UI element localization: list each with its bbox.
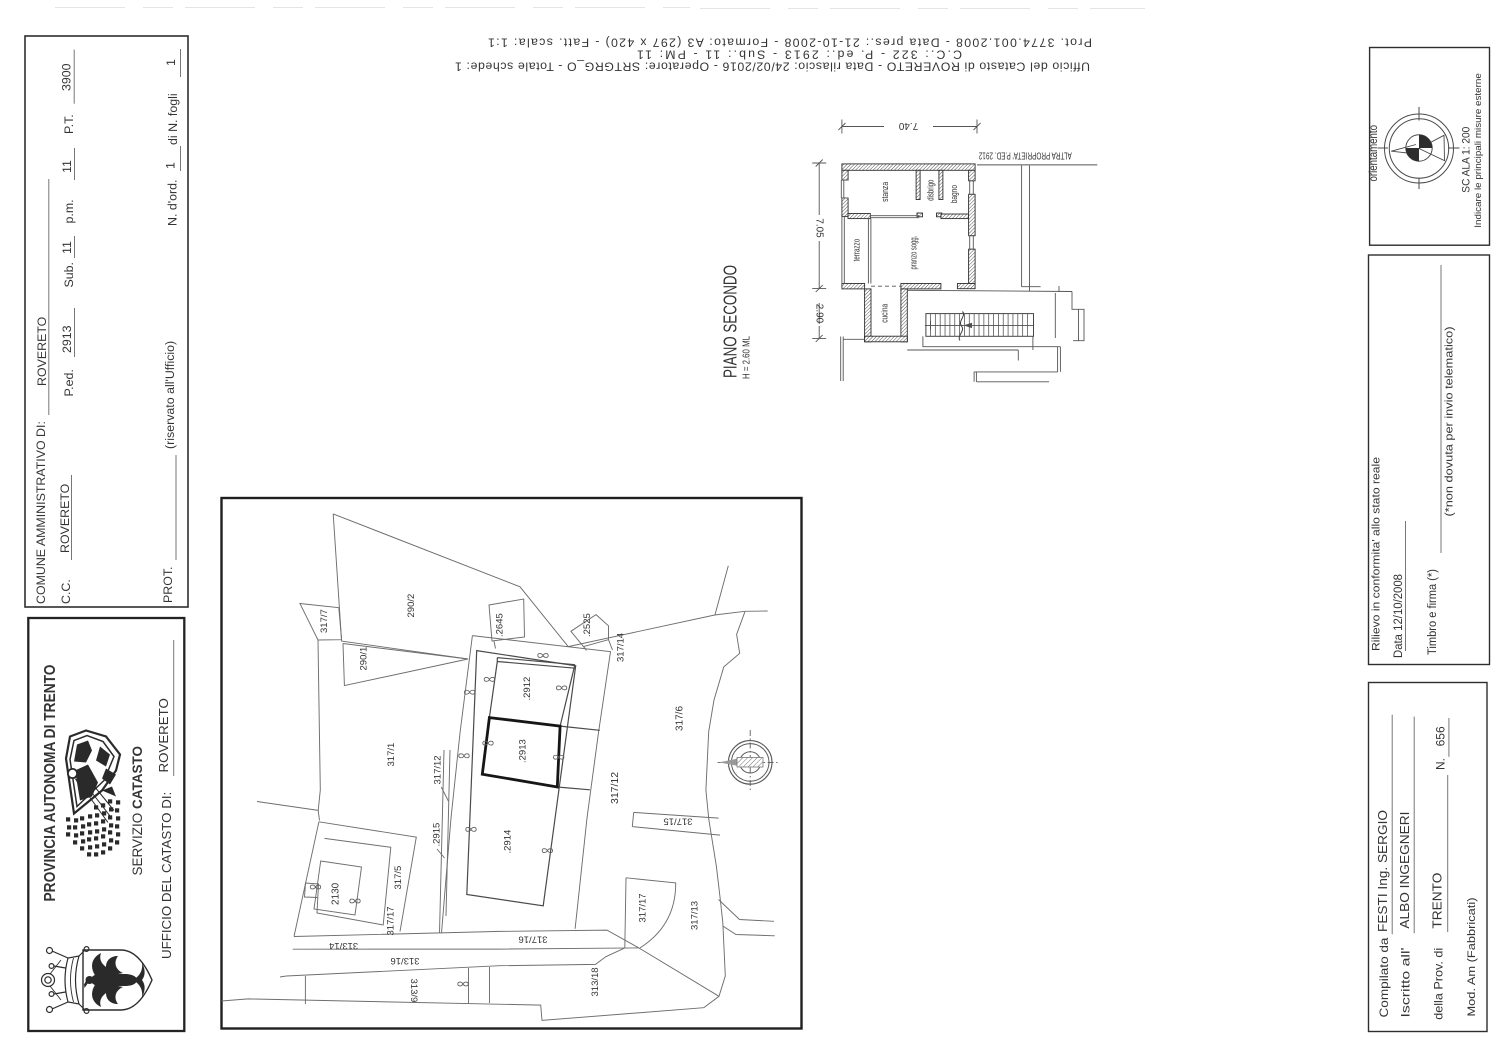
svg-text:PROT.: PROT. <box>161 567 175 604</box>
svg-text:C.C.: 322 - P. ed.: 2913 - Sub: C.C.: 322 - P. ed.: 2913 - Sub.: 11 - PM… <box>637 48 962 62</box>
svg-text:317/14: 317/14 <box>616 633 627 662</box>
svg-text:FESTI Ing. SERGIO: FESTI Ing. SERGIO <box>1376 810 1390 932</box>
svg-text:ALBO INGEGNERI: ALBO INGEGNERI <box>1398 812 1412 929</box>
svg-text:317/17: 317/17 <box>638 893 649 922</box>
svg-text:Prot. 3774.001.2008 - Data pre: Prot. 3774.001.2008 - Data pres.: 21-10-… <box>488 36 1092 50</box>
svg-text:p.m.: p.m. <box>62 199 76 223</box>
svg-text:di N. fogli: di N. fogli <box>166 93 180 145</box>
svg-text:.2912: .2912 <box>522 677 533 701</box>
svg-text:bagno: bagno <box>949 185 959 203</box>
svg-text:313/18: 313/18 <box>590 967 601 996</box>
svg-text:cucina: cucina <box>880 304 890 323</box>
svg-text:(riservato all'Ufficio): (riservato all'Ufficio) <box>163 341 177 449</box>
svg-text:UFFICIO DEL CATASTO DI:: UFFICIO DEL CATASTO DI: <box>159 792 174 959</box>
svg-text:1: 1 <box>164 162 178 169</box>
svg-text:317/1: 317/1 <box>386 743 397 767</box>
svg-text:2.90: 2.90 <box>814 304 825 324</box>
svg-text:313/14: 313/14 <box>329 940 358 951</box>
svg-text:11: 11 <box>60 160 74 173</box>
svg-text:317/13: 317/13 <box>690 901 701 930</box>
svg-text:.2525: .2525 <box>582 613 593 637</box>
svg-text:317/16: 317/16 <box>518 933 547 944</box>
svg-text:della Prov. di: della Prov. di <box>1432 948 1446 1020</box>
svg-text:.2915: .2915 <box>432 823 443 847</box>
svg-text:Compilato da: Compilato da <box>1377 937 1391 1017</box>
svg-text:Data 12/10/2008: Data 12/10/2008 <box>1393 574 1405 658</box>
svg-text:656: 656 <box>1434 726 1448 746</box>
svg-text:.2913: .2913 <box>518 739 529 763</box>
svg-text:313/9: 313/9 <box>408 979 419 1003</box>
svg-text:PIANO SECONDO: PIANO SECONDO <box>720 265 741 378</box>
svg-text:317/6: 317/6 <box>675 706 686 731</box>
svg-text:SC ALA 1: 200: SC ALA 1: 200 <box>1460 127 1472 193</box>
svg-text:Rilievo in conformita' allo st: Rilievo in conformita' allo stato reale <box>1371 457 1383 651</box>
svg-text:Iscritto all': Iscritto all' <box>1399 948 1413 1018</box>
svg-text:H = 2.60 ML: H = 2.60 ML <box>741 336 753 379</box>
svg-text:P.T.: P.T. <box>62 114 76 134</box>
svg-text:orientamento: orientamento <box>1366 125 1380 182</box>
svg-text:ALTRA PROPRIETA' P.ED. 2912: ALTRA PROPRIETA' P.ED. 2912 <box>979 149 1072 160</box>
svg-text:317/5: 317/5 <box>393 866 404 890</box>
svg-text:317/17: 317/17 <box>386 906 397 935</box>
svg-text:N. d'ord.: N. d'ord. <box>166 180 180 226</box>
svg-text:317/7: 317/7 <box>319 609 330 633</box>
svg-text:317/12: 317/12 <box>609 772 621 804</box>
svg-text:290/2: 290/2 <box>406 594 417 618</box>
svg-text:SERVIZIO CATASTO: SERVIZIO CATASTO <box>130 746 145 876</box>
svg-text:disbrigo: disbrigo <box>926 180 936 201</box>
svg-text:TRENTO: TRENTO <box>1431 872 1445 928</box>
svg-text:Sub.: Sub. <box>62 262 76 288</box>
svg-text:317/15: 317/15 <box>663 816 692 827</box>
svg-text:COMUNE AMMINISTRATIVO DI:: COMUNE AMMINISTRATIVO DI: <box>34 421 48 604</box>
svg-text:Ufficio del Catasto di ROVERET: Ufficio del Catasto di ROVERETO - Data r… <box>455 60 1090 74</box>
svg-text:Mod. Am (Fabbricati): Mod. Am (Fabbricati) <box>1466 897 1478 1016</box>
svg-text:11: 11 <box>60 241 74 254</box>
svg-text:ROVERETO: ROVERETO <box>58 483 72 553</box>
svg-text:313/16: 313/16 <box>390 955 419 966</box>
svg-text:P.ed.: P.ed. <box>62 369 76 396</box>
svg-text:2913: 2913 <box>60 325 74 353</box>
svg-text:PROVINCIA AUTONOMA DI TRENTO: PROVINCIA AUTONOMA DI TRENTO <box>42 665 59 902</box>
svg-text:terrazzo: terrazzo <box>852 239 862 262</box>
svg-text:.2914: .2914 <box>503 830 514 854</box>
svg-text:.2645: .2645 <box>495 613 506 637</box>
svg-text:N.: N. <box>1434 758 1448 770</box>
svg-text:3900: 3900 <box>60 63 74 91</box>
svg-text:1: 1 <box>164 59 178 66</box>
svg-text:ROVERETO: ROVERETO <box>35 316 49 386</box>
svg-text:7.40: 7.40 <box>898 120 918 131</box>
svg-text:ROVERETO: ROVERETO <box>156 698 171 772</box>
svg-text:(*non dovuta per invio telemat: (*non dovuta per invio telematico) <box>1444 327 1456 517</box>
svg-text:stanza: stanza <box>880 182 890 202</box>
svg-text:7.05: 7.05 <box>814 218 825 238</box>
svg-text:290/1: 290/1 <box>359 647 370 671</box>
svg-text:Timbro e firma (*): Timbro e firma (*) <box>1427 569 1439 655</box>
svg-text:2130: 2130 <box>331 882 342 905</box>
svg-text:C.C.: C.C. <box>59 579 73 604</box>
svg-text:pranzo sogg.: pranzo sogg. <box>909 236 919 270</box>
svg-text:Indicare le principali misure: Indicare le principali misure esterne <box>1473 73 1484 228</box>
svg-text:317/12: 317/12 <box>433 755 444 784</box>
